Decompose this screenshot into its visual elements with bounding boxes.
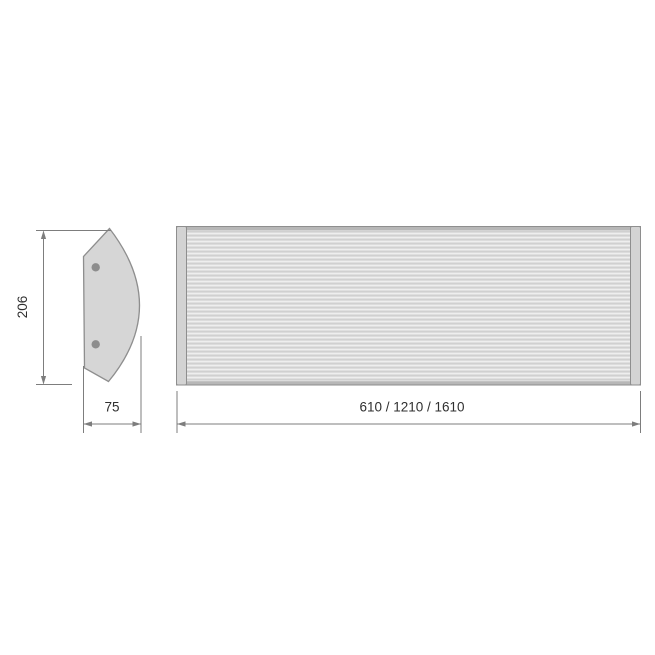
side-profile-shape — [84, 229, 140, 382]
panel-end-cap-right — [631, 227, 641, 386]
width-dimension-label: 610 / 1210 / 1610 — [359, 400, 464, 415]
arrowhead-right — [632, 421, 641, 426]
panel-bottom-edge-band — [177, 381, 640, 384]
panel-top-edge-band — [177, 227, 640, 230]
depth-dimension-label: 75 — [104, 400, 119, 415]
arrowhead-right — [133, 421, 142, 426]
arrowhead-left — [177, 421, 186, 426]
height-dimension-label: 206 — [15, 296, 30, 319]
panel-end-cap-left — [177, 227, 187, 386]
mounting-hole-bottom — [92, 340, 100, 348]
panel-body — [177, 227, 641, 386]
arrowhead-down — [41, 376, 46, 385]
drawing-svg: 206 75 610 / 1210 / 1610 — [0, 0, 655, 655]
arrowhead-up — [41, 231, 46, 240]
technical-drawing: 206 75 610 / 1210 / 1610 — [0, 0, 655, 655]
front-view — [177, 227, 641, 386]
side-view — [84, 229, 140, 382]
mounting-hole-top — [92, 263, 100, 271]
arrowhead-left — [84, 421, 93, 426]
